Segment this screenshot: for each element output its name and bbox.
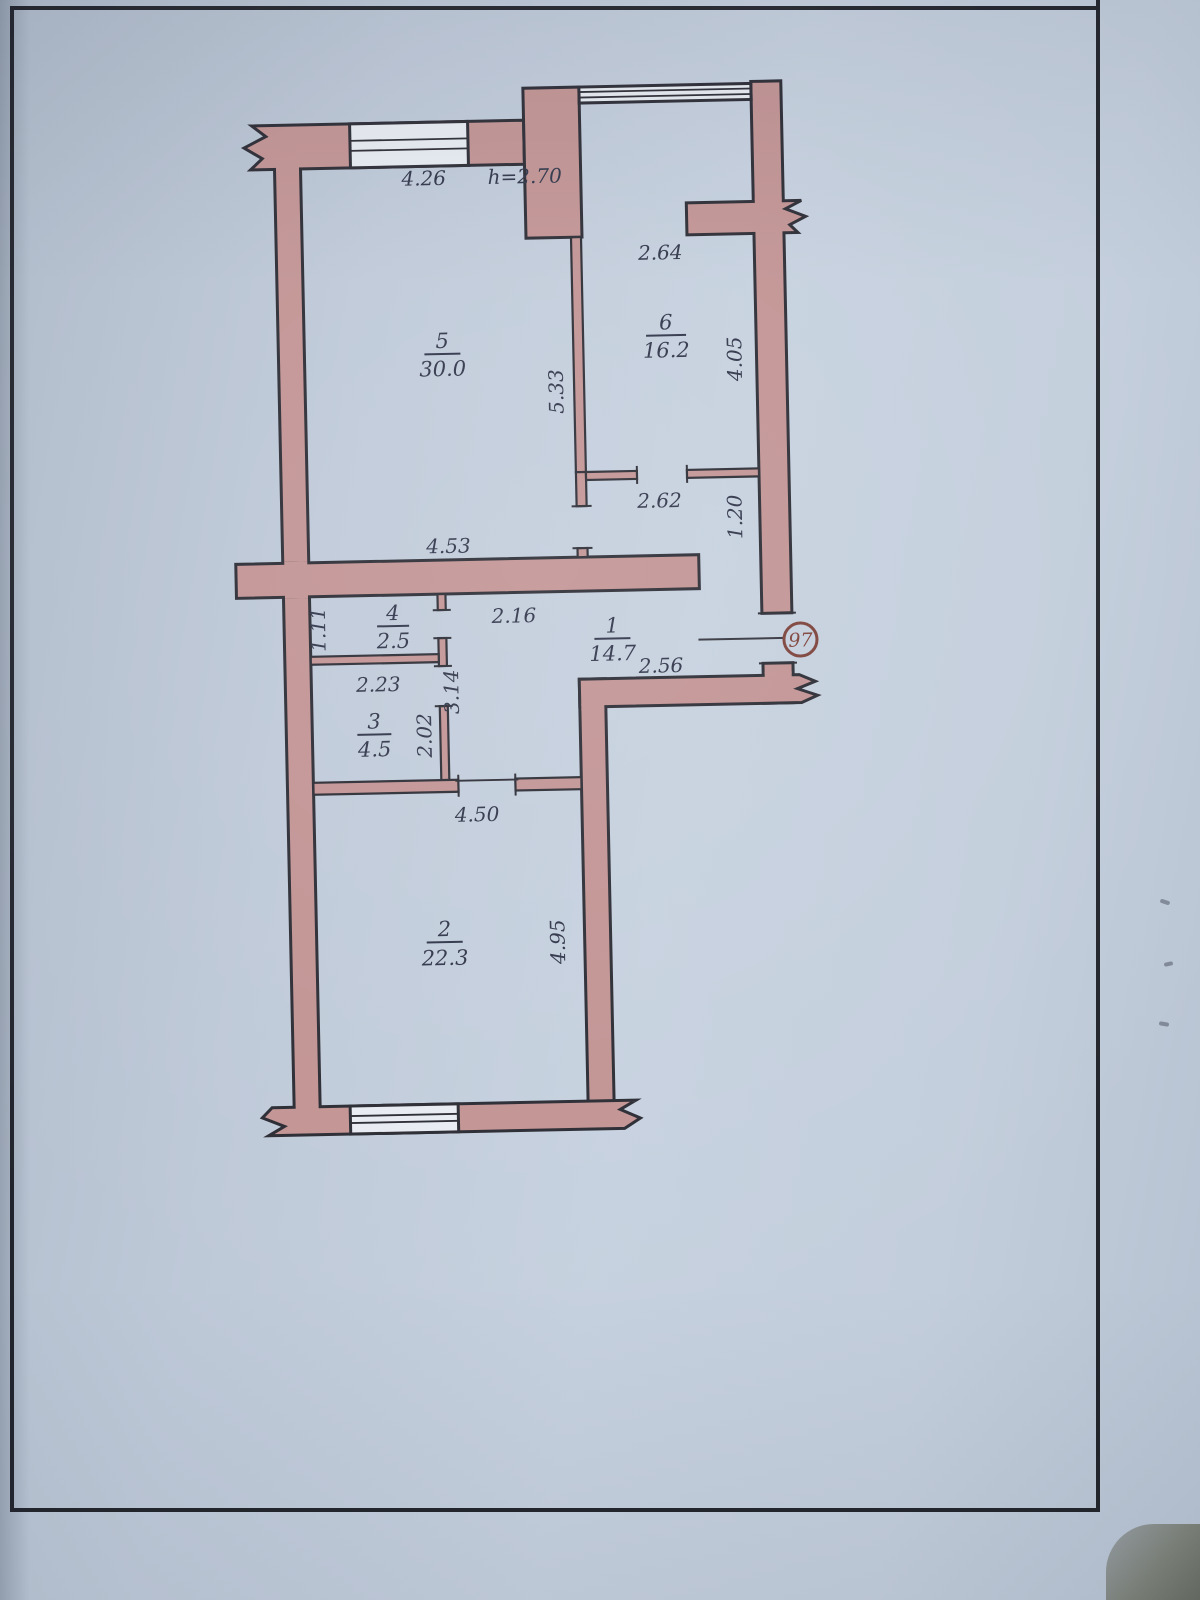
window-room5 xyxy=(350,121,469,167)
room6-area: 16.2 xyxy=(643,338,690,363)
room2-label: 2 22.3 xyxy=(420,917,469,971)
wall-hall-bottom xyxy=(579,674,818,707)
wall-corridor-left-a xyxy=(437,594,445,610)
room6-number: 6 xyxy=(659,310,673,334)
dim-room3-width: 2.23 xyxy=(355,672,401,697)
room1-number: 1 xyxy=(605,613,619,637)
floor-plan-drawing: 97 4.26 h=2.70 2.64 5.33 4.05 2.62 1.20 … xyxy=(0,0,1200,1600)
room1-area: 14.7 xyxy=(589,641,637,666)
wall-right-upper xyxy=(751,81,792,614)
apartment-number-badge: 97 xyxy=(784,623,818,657)
door-room4 xyxy=(433,610,452,638)
dim-vestibule-width: 2.62 xyxy=(636,488,682,513)
wall-room2-top-a xyxy=(313,780,458,795)
room5-number: 5 xyxy=(435,329,449,353)
dim-room5-depth: 5.33 xyxy=(544,369,569,414)
room5-area: 30.0 xyxy=(419,356,466,381)
wall-room2-right xyxy=(579,679,614,1109)
dim-room3-depth: 2.02 xyxy=(412,713,437,759)
window-loggia xyxy=(579,83,751,103)
wall-room6-bottom-a xyxy=(586,471,637,480)
room5-label: 5 30.0 xyxy=(419,329,467,382)
door-room2 xyxy=(458,774,515,797)
wall-room2-top-b xyxy=(515,777,581,790)
room2-number: 2 xyxy=(437,917,452,941)
room6-label: 6 16.2 xyxy=(642,310,690,363)
dim-room4-depth: 1.11 xyxy=(306,607,331,652)
room3-area: 4.5 xyxy=(357,737,392,762)
room4-area: 2.5 xyxy=(375,629,410,654)
window-room2 xyxy=(350,1104,459,1134)
wall-room2-top-line xyxy=(455,779,518,780)
dim-corridor-width: 2.16 xyxy=(490,603,536,628)
dim-hall-width: 2.56 xyxy=(637,653,683,678)
wall-corridor-left-c xyxy=(440,706,450,780)
ceiling-height-label: h=2.70 xyxy=(487,163,562,189)
wall-facade-stub xyxy=(686,200,806,234)
dim-room2-depth: 4.95 xyxy=(545,919,570,965)
dim-vestibule-depth: 1.20 xyxy=(722,494,747,539)
wall-column-top xyxy=(523,87,582,238)
room1-label: 1 14.7 xyxy=(589,613,637,666)
entrance-leader-line xyxy=(698,638,784,640)
wall-room5-room6 xyxy=(571,237,586,472)
wall-junction-patches xyxy=(276,156,801,1109)
dim-loggia-width: 2.64 xyxy=(637,240,683,265)
door-room5-vestibule xyxy=(572,506,593,548)
room4-number: 4 xyxy=(385,601,400,625)
floor-plan-photo: 97 4.26 h=2.70 2.64 5.33 4.05 2.62 1.20 … xyxy=(0,0,1200,1600)
wall-room6-bottom-b xyxy=(687,468,759,478)
wall-room4-room3 xyxy=(311,654,439,665)
door-room6 xyxy=(637,465,687,484)
room3-number: 3 xyxy=(367,709,381,733)
room-labels: 5 30.0 6 16.2 4 2.5 3 4.5 xyxy=(348,310,703,972)
dim-room2-width: 4.50 xyxy=(454,802,500,827)
dim-corridor-depth: 3.14 xyxy=(439,669,464,714)
dim-room6-depth: 4.05 xyxy=(722,336,747,382)
room3-label: 3 4.5 xyxy=(356,709,392,762)
room4-label: 4 2.5 xyxy=(375,601,410,654)
wall-vestibule-left-b xyxy=(578,548,588,557)
dim-mid-wall: 4.53 xyxy=(425,533,471,558)
dim-room5-width: 4.26 xyxy=(400,166,446,191)
room2-area: 22.3 xyxy=(420,946,468,971)
badge-number: 97 xyxy=(788,629,814,652)
